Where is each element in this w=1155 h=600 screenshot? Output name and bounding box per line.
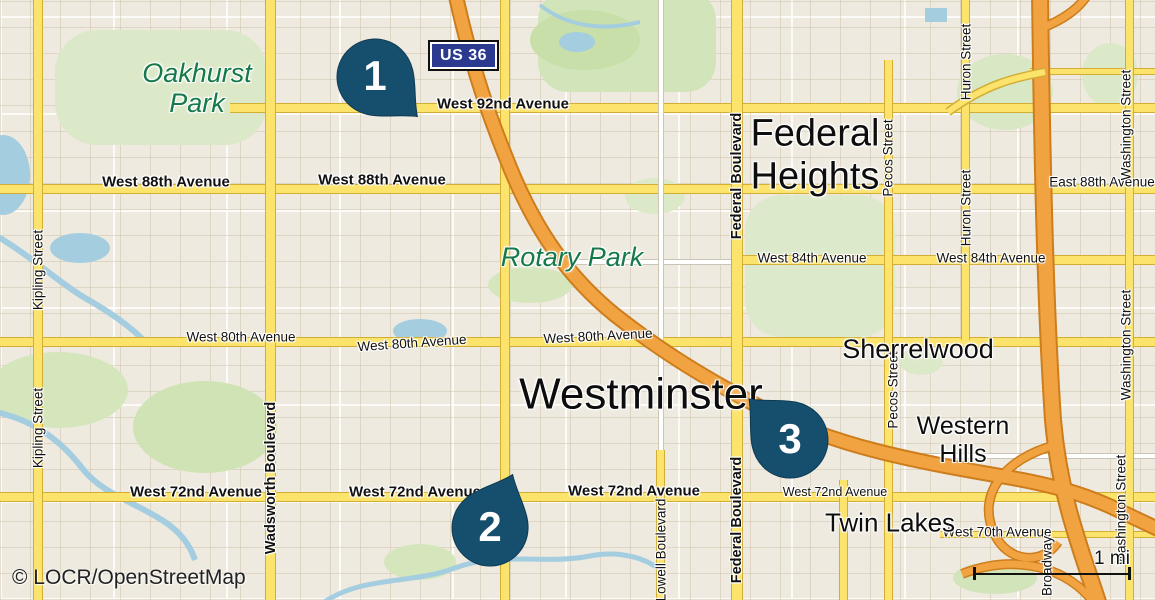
street-label-west-70th: West 70th Avenue [942,525,1051,540]
map-pin-2[interactable]: 2 [442,482,538,592]
place-label-sherrelwood: Sherrelwood [842,334,994,364]
place-label-oakhurst-park: Oakhurst Park [127,58,267,118]
street-label-kipling-b: Kipling Street [31,388,46,468]
place-label-federal-heights: Federal Heights [708,112,923,197]
street-label-west-92nd: West 92nd Avenue [437,96,569,113]
street-label-wadsworth: Wadsworth Boulevard [263,402,279,555]
place-label-twin-lakes: Twin Lakes [825,508,955,537]
pin-2-number: 2 [478,503,501,551]
street-label-huron-b: Huron Street [959,170,974,247]
us-36-highway-shield: US 36 [428,40,499,71]
map-attribution: © LOCR/OpenStreetMap [12,566,246,590]
scale-label: 1 mi [1094,548,1130,570]
street-label-west-72nd-a: West 72nd Avenue [130,484,262,501]
map-pin-1[interactable]: 1 [327,31,423,141]
street-label-west-84th-a: West 84th Avenue [757,251,866,266]
scale-bar [973,573,1130,575]
place-label-western-hills: Western Hills [898,412,1028,468]
street-label-west-88th-a: West 88th Avenue [102,174,230,191]
street-label-broadway: Broadway [1040,536,1055,596]
street-label-west-80th-a: West 80th Avenue [186,330,295,345]
pin-3-number: 3 [778,415,801,463]
street-label-west-88th-b: West 88th Avenue [318,172,446,189]
street-label-west-84th-b: West 84th Avenue [936,251,1045,266]
street-label-lowell: Lowell Boulevard [654,499,669,600]
place-label-rotary-park: Rotary Park [501,242,644,272]
street-label-kipling-a: Kipling Street [31,230,46,310]
map-pin-3[interactable]: 3 [742,394,838,504]
street-label-west-72nd-c: West 72nd Avenue [568,483,700,500]
street-label-washington-a: Washington Street [1119,70,1134,181]
pin-1-number: 1 [363,52,386,100]
street-label-washington-b: Washington Street [1119,290,1134,401]
scale-bar-left-tick [973,567,976,580]
map-canvas[interactable]: West 92nd Avenue West 88th Avenue West 8… [0,0,1155,600]
street-label-huron-a: Huron Street [959,24,974,101]
street-label-east-88th: East 88th Avenue [1049,175,1155,190]
us-36-shield-label: US 36 [440,47,487,65]
